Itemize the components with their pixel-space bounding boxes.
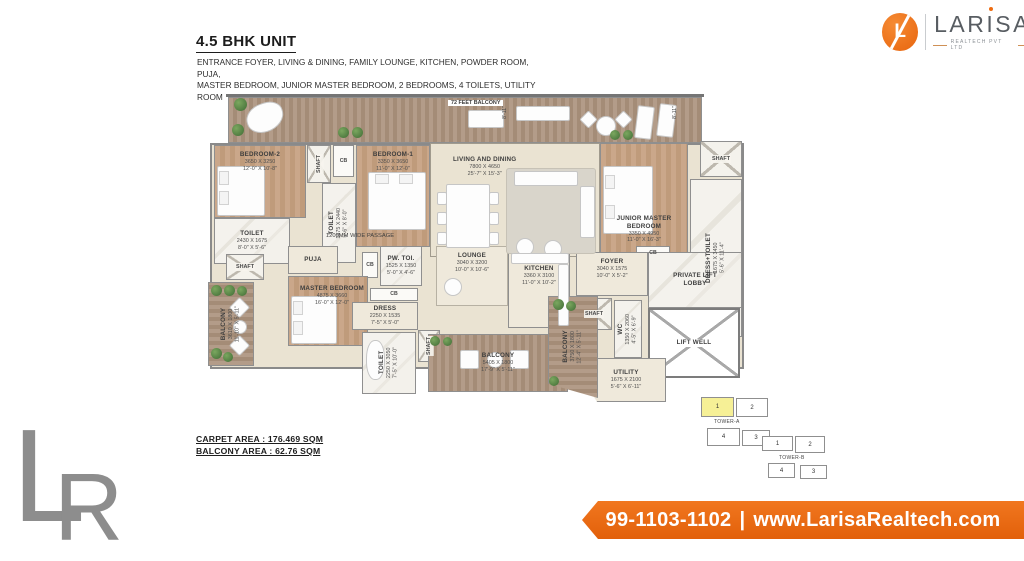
room-wc: WC 1350 X 2060 4'-5" X 6'-9"	[614, 300, 642, 358]
room-dim-mm: 7800 X 4650	[453, 164, 516, 171]
keyplan-unit-number: 3	[754, 435, 757, 441]
plant-icon	[234, 98, 247, 111]
cb-label: CB	[340, 158, 348, 165]
keyplan-unit-number: 4	[780, 468, 783, 474]
room-private-lift-lobby: PRIVATE LIFT LOBBY	[648, 252, 742, 308]
logo-tagline: REALTECH PVT LTD	[951, 39, 1015, 51]
logo-divider	[925, 14, 926, 50]
plant-icon	[211, 285, 222, 296]
kitchen-counter-icon	[511, 253, 569, 264]
brand-logo: L LARISA REALTECH PVT LTD	[882, 13, 1024, 51]
room-dim-ft: 5'-6" X 11'-4"	[720, 233, 727, 283]
plant-icon	[553, 299, 564, 310]
balcony-area-text: BALCONY AREA : 62.76 SQM	[196, 446, 320, 456]
plant-icon	[566, 301, 576, 311]
room-name: LIFT WELL	[675, 339, 714, 347]
plant-icon	[430, 336, 440, 346]
room-name: DRESS	[370, 305, 401, 313]
room-name: BALCONY	[481, 352, 515, 360]
shaft-5: SHAFT	[226, 254, 264, 280]
plant-icon	[232, 124, 244, 136]
cb-label: CB	[390, 291, 398, 298]
plant-icon	[237, 286, 247, 296]
shaft-label: SHAFT	[315, 154, 324, 174]
dining-chair-icon	[437, 232, 447, 245]
keyplan-unit-number: 1	[716, 404, 719, 410]
dimension-label-2: 8'-11"	[672, 106, 678, 119]
watermark-letter-r: R	[54, 460, 123, 556]
room-name: FOYER	[596, 258, 627, 266]
dining-chair-icon	[489, 192, 499, 205]
dining-chair-icon	[437, 192, 447, 205]
balcony-top-label: 72 FEET BALCONY	[448, 100, 503, 106]
balcony-sofa-icon	[516, 106, 570, 121]
bed-icon	[217, 166, 265, 216]
lounge-chair-icon	[444, 278, 462, 296]
room-dim-mm: 3350 X 3650	[373, 159, 413, 166]
cupboard-1: CB	[333, 145, 354, 177]
bed-icon	[368, 172, 426, 230]
passage-label: 1200MM WIDE PASSAGE	[316, 233, 404, 241]
room-dim-mm: 3650 X 3250	[240, 159, 280, 166]
sofa-icon	[514, 171, 578, 186]
room-dim-mm: 4875 X 3660	[300, 293, 364, 300]
contact-phone: 99-1103-1102	[606, 509, 732, 532]
keyplan-unit-b3: 3	[800, 465, 827, 479]
logo-monogram-icon: L	[882, 13, 918, 51]
plant-icon	[223, 352, 233, 362]
room-foyer: FOYER 3040 X 1575 10'-0" X 5'-2"	[576, 252, 648, 296]
keyplan-unit-b2: 2	[795, 436, 825, 453]
room-dim-ft: 7'-5" X 5'-0"	[370, 320, 401, 327]
room-dim-mm: 3040 X 3200	[455, 260, 489, 267]
shaft-label: SHAFT	[235, 263, 255, 272]
logo-tagline-line-left	[933, 45, 946, 46]
kitchen-counter-icon	[558, 264, 569, 326]
logo-tagline-line-right	[1018, 45, 1024, 46]
keyplan-tower-a-label: TOWER-A	[714, 419, 740, 425]
logo-tagline-row: REALTECH PVT LTD	[933, 39, 1024, 51]
shaft-label: SHAFT	[711, 155, 731, 164]
room-name: PUJA	[304, 256, 322, 264]
logo-brand-i: I	[986, 11, 995, 37]
room-dim-mm: 2430 X 1675	[237, 238, 268, 245]
room-dim-ft: 8'-0" X 5'-6"	[237, 245, 268, 252]
dimension-label-1: 8'-11"	[502, 106, 508, 119]
logo-brand-part2: SA	[995, 11, 1024, 37]
room-name: TOILET	[237, 230, 268, 238]
room-name: UTILITY	[611, 369, 642, 377]
cb-label: CB	[366, 262, 374, 269]
plant-icon	[623, 130, 633, 140]
keyplan-unit-number: 1	[776, 441, 779, 447]
keyplan-unit-number: 2	[808, 442, 811, 448]
shaft-1: SHAFT	[307, 145, 331, 183]
room-dim-mm: 3040 X 1575	[596, 266, 627, 273]
room-dim-ft: 17'-9" X 5'-11"	[481, 367, 515, 374]
contact-ribbon: 99-1103-1102 | www.LarisaRealtech.com	[582, 501, 1024, 539]
keyplan-unit-number: 3	[812, 469, 815, 475]
dining-chair-icon	[437, 212, 447, 225]
room-dim-ft: 4'-5" X 6'-9"	[632, 314, 639, 345]
page-title: 4.5 BHK UNIT	[196, 33, 296, 53]
room-dim-mm: 2250 X 1535	[370, 313, 401, 320]
plant-icon	[338, 127, 349, 138]
plant-icon	[443, 337, 452, 346]
room-name: LOUNGE	[455, 252, 489, 260]
room-dim-mm: 1675 X 2100	[611, 377, 642, 384]
keyplan-unit-b1: 1	[762, 436, 793, 451]
room-name: MASTER BEDROOM	[300, 285, 364, 293]
balcony-chair-icon	[460, 350, 479, 369]
room-puja: PUJA	[288, 246, 338, 274]
room-dim-ft: 10'-0" X 5'-2"	[596, 273, 627, 280]
room-name: KITCHEN	[522, 265, 556, 273]
room-dim-ft: 25'-7" X 15'-3"	[453, 171, 516, 178]
plant-icon	[610, 130, 620, 140]
room-lounge: LOUNGE 3040 X 3200 10'-0" X 10'-6"	[436, 246, 508, 306]
unit-description-line1: ENTRANCE FOYER, LIVING & DINING, FAMILY …	[197, 57, 537, 80]
room-dim-ft: 11'-0" X 12'-0"	[373, 166, 413, 173]
dining-chair-icon	[489, 212, 499, 225]
keyplan-unit-b4: 4	[768, 463, 795, 478]
dining-table-icon	[446, 184, 490, 248]
room-dim-ft: 11'-10" X 5'-11"	[235, 306, 242, 342]
room-dim-ft: 10'-0" X 10'-6"	[455, 267, 489, 274]
plant-icon	[549, 376, 559, 386]
carpet-area-text: CARPET AREA : 176.469 SQM	[196, 434, 323, 444]
room-dim-ft: 7'-5" X 10'-0"	[393, 347, 400, 378]
room-dim-ft: 5'-0" X 4'-6"	[386, 270, 417, 277]
keyplan-unit-number: 4	[722, 434, 725, 440]
room-name: PW. TOI.	[386, 255, 417, 263]
plant-icon	[211, 348, 222, 359]
room-name: BEDROOM-2	[240, 151, 280, 159]
room-powder-toilet: PW. TOI. 1525 X 1350 5'-0" X 4'-6"	[380, 246, 422, 286]
keyplan-unit-a2: 2	[736, 398, 768, 417]
contact-website[interactable]: www.LarisaRealtech.com	[753, 509, 1000, 532]
room-dim-mm: 1525 X 1350	[386, 263, 417, 270]
room-name: BEDROOM-1	[373, 151, 413, 159]
room-dim-ft: 12'-4" X 5'-11"	[577, 330, 584, 364]
outer-wall-top	[226, 94, 704, 97]
keyplan-tower-b-label: TOWER-B	[779, 455, 805, 461]
cupboard-4: CB	[370, 288, 418, 301]
room-name: JUNIOR MASTER BEDROOM	[601, 215, 687, 231]
room-dim-ft: 5'-6" X 6'-11"	[611, 384, 642, 391]
cb-label: CB	[649, 250, 657, 257]
room-dim-mm: 3350 X 4950	[601, 231, 687, 238]
keyplan-unit-a4: 4	[707, 428, 740, 446]
logo-brand-part1: LAR	[934, 11, 986, 37]
contact-separator: |	[739, 509, 745, 532]
dining-chair-icon	[489, 232, 499, 245]
shaft-2: SHAFT	[700, 141, 742, 177]
logo-brand-name: LARISA	[934, 13, 1024, 36]
logo-text: LARISA REALTECH PVT LTD	[933, 13, 1024, 51]
room-dim-mm: 3360 X 3100	[522, 273, 556, 280]
sofa-icon	[580, 186, 595, 238]
room-dim-ft: 12'-0" X 10'-8"	[240, 166, 280, 173]
room-dim-mm: 5405 X 1800	[481, 360, 515, 367]
room-name: PRIVATE LIFT LOBBY	[670, 272, 720, 288]
keyplan-unit-number: 2	[750, 405, 753, 411]
plant-icon	[224, 285, 235, 296]
room-dim-ft: 11'-0" X 10'-2"	[522, 280, 556, 287]
room-utility: UTILITY 1675 X 2100 5'-6" X 6'-11"	[586, 358, 666, 402]
keyplan-unit-a1: 1	[701, 397, 734, 417]
room-dim-ft: 16'-0" X 12'-0"	[300, 300, 364, 307]
room-name: LIVING AND DINING	[453, 156, 516, 164]
balcony-sofa-icon	[468, 110, 504, 128]
cupboard-3: CB	[362, 252, 378, 278]
shaft-label: SHAFT	[584, 310, 604, 319]
plant-icon	[352, 127, 363, 138]
logo-monogram-letter: L	[894, 21, 906, 43]
room-dim-ft: 11'-0" X 16'-3"	[601, 237, 687, 244]
